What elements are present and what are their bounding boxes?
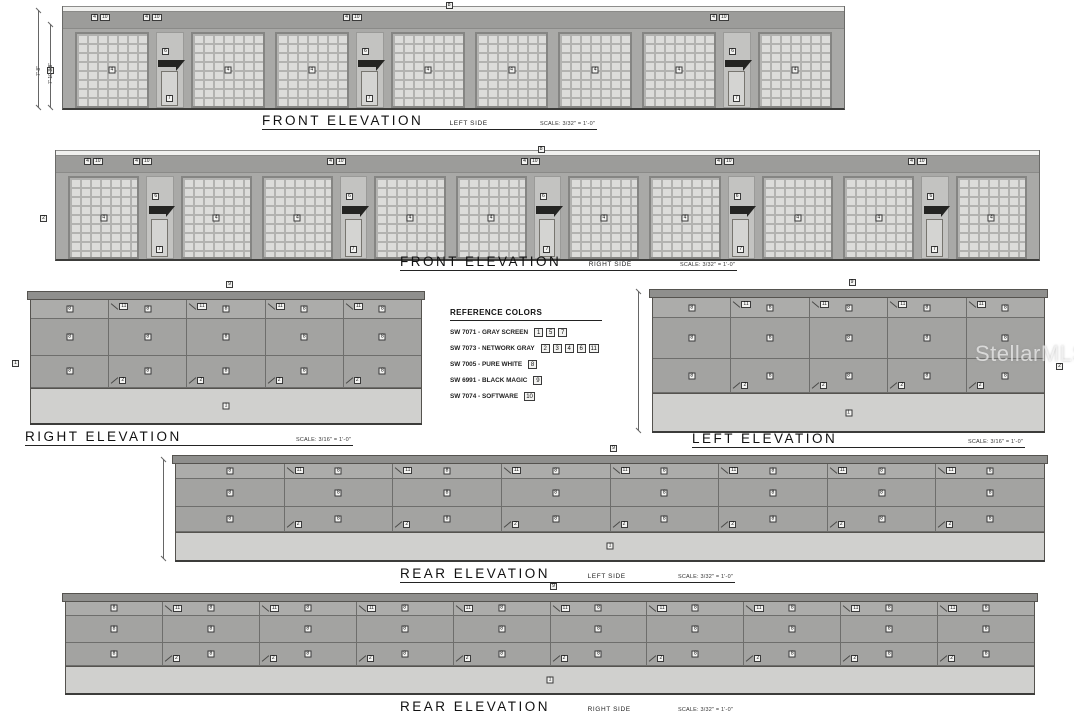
color-callout-tag: 10 (100, 14, 110, 21)
wall-panel: 82 (266, 356, 344, 386)
front-elevation-left-side-drawing: 47644764444764 41041041041081 7'-8" 7'-1… (62, 6, 845, 110)
panel-row: 882828282828282 (176, 507, 1044, 531)
color-callout-tag: 4 (521, 158, 528, 165)
color-callout-tag: 8 (878, 489, 885, 496)
color-callout-tag: 11 (464, 605, 473, 612)
color-callout-tag: 9 (550, 583, 557, 590)
color-callout-tag: 8 (789, 651, 796, 658)
color-callout-tag: 7 (931, 246, 938, 253)
color-callout-tag: 4 (308, 67, 315, 74)
wall-panel: 8 (810, 318, 888, 358)
color-callout-tag: 4 (424, 67, 431, 74)
color-callout-tag: 11 (657, 605, 666, 612)
wall-panel: 8 (611, 479, 720, 507)
parapet-callout-cluster: 410 (133, 158, 152, 165)
color-callout-tag: 4 (565, 344, 574, 353)
color-callout-tag: 8 (595, 605, 602, 612)
color-callout-tag: 4 (488, 214, 495, 221)
color-callout-tag: 8 (401, 651, 408, 658)
panel-wall: 8811811811811811811811888888888828282828… (175, 464, 1045, 532)
color-callout-tag: 8 (845, 335, 852, 342)
legend-item: SW 7073 - NETWORK GRAY234611 (450, 344, 602, 353)
color-callout-tag: 6 (162, 48, 169, 55)
right-elevation-drawing: 881181181181188888882828282 1 91 (30, 291, 422, 425)
entry-door: 7 (345, 219, 362, 257)
color-callout-tag: 8 (498, 625, 505, 632)
color-callout-tag: 8 (595, 651, 602, 658)
legend-item: SW 7074 - SOFTWARE10 (450, 392, 602, 401)
elevation-scale-label: SCALE: 3/32" = 1'-0" (680, 262, 735, 268)
color-callout-tag: 2 (820, 382, 827, 389)
wall-panel: 8 (176, 479, 285, 507)
wall-panel: 82 (810, 359, 888, 392)
wall-panel: 82 (454, 643, 551, 665)
wall-panel: 8 (66, 602, 163, 615)
parapet-callout-cluster: 410 (84, 158, 103, 165)
panel-row: 88888888 (176, 479, 1044, 508)
entry-door: 7 (361, 71, 378, 106)
color-callout-tag: 8 (528, 360, 537, 369)
color-callout-tag: 11 (820, 301, 829, 308)
panel-wall: 8811811811811811811811811811888888888888… (65, 602, 1035, 666)
wall-panel: 8 (888, 318, 966, 358)
color-callout-tag: 4 (407, 214, 414, 221)
garage-door: 4 (568, 176, 639, 259)
wall-panel: 8 (357, 616, 454, 642)
color-callout-tag: 8 (207, 625, 214, 632)
parapet-callout-cluster: 410 (908, 158, 927, 165)
wall-panel: 8 (653, 298, 731, 317)
wall-panel: 8 (841, 616, 938, 642)
color-callout-tag: 8 (444, 516, 451, 523)
wall-panel: 811 (719, 464, 828, 478)
garage-door: 4 (649, 176, 720, 259)
color-callout-tag: 2 (197, 377, 204, 384)
legend-item: SW 7071 - GRAY SCREEN157 (450, 328, 602, 337)
color-callout-tag: 2 (838, 521, 845, 528)
entry-door-bay: 76 (340, 176, 367, 259)
door-bay-row: 47644764444764 (70, 32, 837, 108)
awning (358, 60, 376, 67)
color-callout-tag: 11 (512, 467, 521, 474)
color-callout-tag: 11 (197, 303, 206, 310)
legend-tag-group: 157 (534, 328, 567, 337)
wall-panel: 8 (66, 616, 163, 642)
wall-panel: 8 (454, 616, 551, 642)
color-callout-tag: 6 (734, 193, 741, 200)
color-callout-tag: 6 (729, 48, 736, 55)
color-callout-tag: 10 (524, 392, 535, 401)
elevation-scale-label: SCALE: 3/16" = 1'-0" (968, 439, 1023, 445)
color-callout-tag: 1 (845, 409, 852, 416)
awning (536, 206, 553, 214)
garage-door: 4 (181, 176, 252, 259)
color-callout-tag: 11 (295, 467, 304, 474)
color-callout-tag: 8 (226, 516, 233, 523)
color-callout-tag: 8 (207, 605, 214, 612)
wall-panel: 8 (653, 359, 731, 392)
color-callout-tag: 2 (119, 377, 126, 384)
color-callout-tag: 5 (546, 328, 555, 337)
color-callout-tag: 11 (729, 467, 738, 474)
legend-tag-group: 9 (533, 376, 542, 385)
color-callout-tag: 7 (166, 95, 173, 102)
color-callout-tag: 8 (223, 305, 230, 312)
awning (941, 206, 950, 217)
color-callout-tag: 11 (173, 605, 182, 612)
color-callout-tag: 4 (143, 14, 150, 21)
garage-door: 4 (558, 32, 632, 108)
wall-panel: 82 (719, 507, 828, 530)
color-callout-tag: 8 (223, 368, 230, 375)
wall-panel: 811 (841, 602, 938, 615)
panel-row: 8811811811811 (653, 298, 1044, 318)
wall-panel: 8 (936, 479, 1044, 507)
color-callout-tag: 11 (851, 605, 860, 612)
color-callout-tag: 8 (767, 304, 774, 311)
color-callout-tag: 2 (946, 521, 953, 528)
wall-panel: 811 (888, 298, 966, 317)
garage-door: 4 (762, 176, 833, 259)
color-callout-tag: 4 (988, 214, 995, 221)
wall-panel: 82 (551, 643, 648, 665)
color-callout-tag: 8 (301, 368, 308, 375)
garage-door: 4 (758, 32, 832, 108)
color-callout-tag: 11 (276, 303, 285, 310)
wall-panel: 82 (841, 643, 938, 665)
entry-door-bay: 76 (728, 176, 755, 259)
color-callout-tag: 8 (538, 146, 545, 153)
color-callout-tag: 7 (366, 95, 373, 102)
color-callout-tag: 10 (530, 158, 540, 165)
color-callout-tag: 8 (144, 305, 151, 312)
color-callout-tag: 8 (692, 625, 699, 632)
entry-door-bay: 76 (723, 32, 751, 108)
entry-door: 7 (539, 219, 556, 257)
panel-wall: 881181181181188888882828282 (30, 300, 422, 388)
entry-door-bay: 76 (146, 176, 173, 259)
base-band: 1 (65, 666, 1035, 693)
color-callout-tag: 8 (878, 516, 885, 523)
color-callout-tag: 8 (661, 516, 668, 523)
color-callout-tag: 8 (845, 304, 852, 311)
awning (376, 60, 385, 71)
wall-panel: 82 (647, 643, 744, 665)
color-callout-tag: 4 (675, 67, 682, 74)
color-callout-tag: 8 (692, 651, 699, 658)
entry-door-bay: 76 (921, 176, 948, 259)
color-callout-tag: 8 (923, 304, 930, 311)
wall-panel: 811 (109, 300, 187, 318)
color-callout-tag: 11 (741, 301, 750, 308)
awning (924, 206, 941, 214)
color-callout-tag: 11 (561, 605, 570, 612)
color-callout-tag: 8 (379, 305, 386, 312)
color-callout-tag: 11 (898, 301, 907, 308)
wall-panel: 8 (285, 479, 394, 507)
color-callout-tag: 2 (729, 521, 736, 528)
garage-door: 4 (68, 176, 139, 259)
color-callout-tag: 2 (173, 655, 180, 662)
color-callout-tag: 4 (908, 158, 915, 165)
color-callout-tag: 1 (534, 328, 543, 337)
color-callout-tag: 6 (927, 193, 934, 200)
color-callout-tag: 8 (987, 516, 994, 523)
wall-panel: 8 (647, 616, 744, 642)
wall-panel: 82 (744, 643, 841, 665)
wall-panel: 8 (187, 319, 265, 355)
awning (725, 60, 743, 67)
parapet-callout-cluster: 410 (710, 14, 729, 21)
wall-panel: 8 (393, 479, 502, 507)
base-band: 1 (652, 393, 1045, 431)
color-callout-tag: 8 (552, 467, 559, 474)
wall-panel: 82 (285, 507, 394, 530)
wall-panel: 82 (888, 359, 966, 392)
color-callout-tag: 4 (100, 214, 107, 221)
wall-panel: 8 (176, 464, 285, 478)
parapet-callout-cluster: 410 (343, 14, 362, 21)
color-callout-tag: 8 (335, 467, 342, 474)
awning (360, 206, 369, 217)
panel-row: 8811811811811811811811811811 (66, 602, 1034, 616)
color-callout-tag: 6 (540, 193, 547, 200)
garage-door: 4 (456, 176, 527, 259)
color-callout-tag: 4 (715, 158, 722, 165)
elevation-label: REAR ELEVATION RIGHT SIDE SCALE: 3/32" =… (400, 698, 735, 715)
color-callout-tag: 7 (350, 246, 357, 253)
wall-panel: 811 (938, 602, 1034, 615)
wall-panel: 8 (163, 616, 260, 642)
wall-panel: 82 (828, 507, 937, 530)
legend-color-name: SW 7074 - SOFTWARE (450, 393, 518, 400)
color-callout-tag: 8 (66, 333, 73, 340)
color-callout-tag: 9 (533, 376, 542, 385)
color-callout-tag: 11 (270, 605, 279, 612)
color-callout-tag: 8 (769, 516, 776, 523)
color-callout-tag: 4 (600, 214, 607, 221)
color-callout-tag: 10 (352, 14, 362, 21)
color-callout-tag: 4 (681, 214, 688, 221)
wall-panel: 811 (647, 602, 744, 615)
wall-panel: 811 (344, 300, 421, 318)
wall-panel: 811 (502, 464, 611, 478)
awning (158, 60, 176, 67)
wall-panel: 82 (611, 507, 720, 530)
entry-door-bay: 76 (156, 32, 184, 108)
wall-panel: 8 (744, 616, 841, 642)
garage-door: 4 (191, 32, 265, 108)
color-callout-tag: 4 (84, 158, 91, 165)
garage-door: 4 (843, 176, 914, 259)
elevation-title: FRONT ELEVATION (262, 113, 423, 128)
wall-panel: 8 (266, 319, 344, 355)
color-callout-tag: 10 (152, 14, 162, 21)
color-callout-tag: 9 (610, 445, 617, 452)
rear-elevation-left-side-drawing: 8811811811811811811811888888888828282828… (175, 455, 1045, 562)
wall-panel: 811 (357, 602, 454, 615)
elevation-label: FRONT ELEVATION LEFT SIDE SCALE: 3/32" =… (262, 112, 597, 130)
color-callout-tag: 11 (621, 467, 630, 474)
color-callout-tag: 8 (886, 651, 893, 658)
color-callout-tag: 10 (336, 158, 346, 165)
color-callout-tag: 2 (851, 655, 858, 662)
color-callout-tag: 2 (561, 655, 568, 662)
dimension-text: 7'-8" (36, 66, 42, 76)
color-callout-tag: 8 (987, 489, 994, 496)
entry-door: 7 (732, 219, 749, 257)
rear-elevation-right-side-drawing: 8811811811811811811811811811888888888888… (65, 593, 1035, 695)
legend-color-name: SW 7073 - NETWORK GRAY (450, 345, 535, 352)
garage-door: 4 (275, 32, 349, 108)
building-facade: 47644764476447644764 4104104104104104108… (55, 150, 1040, 261)
wall-panel: 8 (731, 318, 809, 358)
color-callout-tag: 2 (898, 382, 905, 389)
color-callout-tag: 8 (144, 333, 151, 340)
elevation-title: RIGHT ELEVATION (25, 429, 182, 444)
building-facade: 8811811811811811811811811811888888888888… (65, 593, 1035, 695)
panel-row: 8811811811811811811811 (176, 464, 1044, 479)
color-callout-tag: 2 (464, 655, 471, 662)
color-callout-tag: 2 (295, 521, 302, 528)
color-callout-tag: 8 (923, 335, 930, 342)
color-callout-tag: 8 (304, 651, 311, 658)
color-callout-tag: 8 (878, 467, 885, 474)
awning (554, 206, 563, 217)
color-callout-tag: 7 (558, 328, 567, 337)
garage-door: 4 (75, 32, 149, 108)
wall-panel: 8 (719, 479, 828, 507)
wall-panel: 8 (653, 318, 731, 358)
wall-panel: 8 (502, 479, 611, 507)
base-band: 1 (175, 532, 1045, 560)
legend-tag-group: 8 (528, 360, 537, 369)
color-callout-tag: 8 (661, 489, 668, 496)
color-callout-tag: 8 (769, 467, 776, 474)
wall-panel: 82 (393, 507, 502, 530)
wall-panel: 8 (176, 507, 285, 530)
color-callout-tag: 11 (977, 301, 986, 308)
color-callout-tag: 8 (688, 335, 695, 342)
wall-panel: 82 (936, 507, 1044, 530)
wall-panel: 82 (357, 643, 454, 665)
elevation-label: REAR ELEVATION LEFT SIDE SCALE: 3/32" = … (400, 565, 735, 583)
awning (149, 206, 166, 214)
color-callout-tag: 4 (592, 67, 599, 74)
elevation-scale-label: SCALE: 3/16" = 1'-0" (296, 437, 351, 443)
color-callout-tag: 1 (223, 402, 230, 409)
color-callout-tag: 8 (207, 651, 214, 658)
wall-panel: 8 (31, 356, 109, 386)
building-facade: 8811811811811811811811888888888828282828… (175, 455, 1045, 562)
color-callout-tag: 8 (379, 333, 386, 340)
color-callout-tag: 11 (948, 605, 957, 612)
parapet-callout-cluster: 410 (715, 158, 734, 165)
color-callout-tag: 2 (621, 521, 628, 528)
color-callout-tag: 8 (401, 605, 408, 612)
color-callout-tag: 10 (93, 158, 103, 165)
color-callout-tag: 2 (741, 382, 748, 389)
color-callout-tag: 1 (607, 543, 614, 550)
color-callout-tag: 11 (367, 605, 376, 612)
color-callout-tag: 8 (983, 605, 990, 612)
color-callout-tag: 8 (379, 368, 386, 375)
color-callout-tag: 2 (754, 655, 761, 662)
elevation-label: RIGHT ELEVATION SCALE: 3/16" = 1'-0" (25, 428, 353, 446)
color-callout-tag: 2 (354, 377, 361, 384)
color-callout-tag: 10 (142, 158, 152, 165)
elevation-side-label: LEFT SIDE (588, 573, 626, 580)
color-callout-tag: 8 (226, 489, 233, 496)
color-callout-tag: 8 (446, 2, 453, 9)
color-callout-tag: 3 (553, 344, 562, 353)
color-callout-tag: 11 (838, 467, 847, 474)
color-callout-tag: 8 (110, 605, 117, 612)
wall-panel: 811 (828, 464, 937, 478)
wall-panel: 811 (744, 602, 841, 615)
entry-door: 7 (728, 71, 745, 106)
color-callout-tag: 8 (886, 625, 893, 632)
base-band: 1 (30, 388, 422, 423)
panel-row: 88888 (31, 319, 421, 356)
color-callout-tag: 8 (226, 467, 233, 474)
color-callout-tag: 8 (304, 605, 311, 612)
color-callout-tag: 2 (657, 655, 664, 662)
wall-panel: 811 (187, 300, 265, 318)
color-callout-tag: 8 (304, 625, 311, 632)
color-callout-tag: 8 (498, 651, 505, 658)
elevation-side-label: RIGHT SIDE (589, 261, 632, 268)
dimension-line (38, 10, 39, 108)
panel-row: 8811811811811 (31, 300, 421, 319)
color-callout-tag: 8 (1002, 372, 1009, 379)
wall-panel: 8 (551, 616, 648, 642)
entry-door-bay: 76 (534, 176, 561, 259)
wall-panel: 811 (454, 602, 551, 615)
legend-title: REFERENCE COLORS (450, 308, 602, 321)
color-callout-tag: 8 (110, 625, 117, 632)
entry-door: 7 (151, 219, 168, 257)
wall-panel: 82 (344, 356, 421, 386)
wall-panel: 8 (260, 616, 357, 642)
wall-panel: 82 (260, 643, 357, 665)
color-callout-tag: 2 (512, 521, 519, 528)
color-callout-tag: 11 (589, 344, 599, 353)
awning (743, 60, 752, 71)
awning (342, 206, 359, 214)
elevation-side-label: RIGHT SIDE (588, 706, 631, 713)
coping (62, 593, 1038, 602)
color-callout-tag: 8 (595, 625, 602, 632)
color-callout-tag: 8 (923, 372, 930, 379)
color-callout-tag: 2 (541, 344, 550, 353)
color-callout-tag: 8 (301, 333, 308, 340)
color-callout-tag: 4 (792, 67, 799, 74)
elevation-side-label: LEFT SIDE (450, 120, 488, 127)
color-callout-tag: 4 (710, 14, 717, 21)
color-callout-tag: 8 (144, 368, 151, 375)
elevation-label: LEFT ELEVATION SCALE: 3/16" = 1'-0" (692, 430, 1025, 448)
color-callout-tag: 4 (108, 67, 115, 74)
parapet-callout-cluster: 410 (143, 14, 162, 21)
color-callout-tag: 6 (362, 48, 369, 55)
wall-panel: 811 (393, 464, 502, 478)
color-callout-tag: 4 (508, 67, 515, 74)
elevation-scale-label: SCALE: 3/32" = 1'-0" (540, 121, 595, 127)
color-callout-tag: 1 (12, 360, 19, 367)
color-callout-tag: 4 (91, 14, 98, 21)
color-callout-tag: 4 (343, 14, 350, 21)
